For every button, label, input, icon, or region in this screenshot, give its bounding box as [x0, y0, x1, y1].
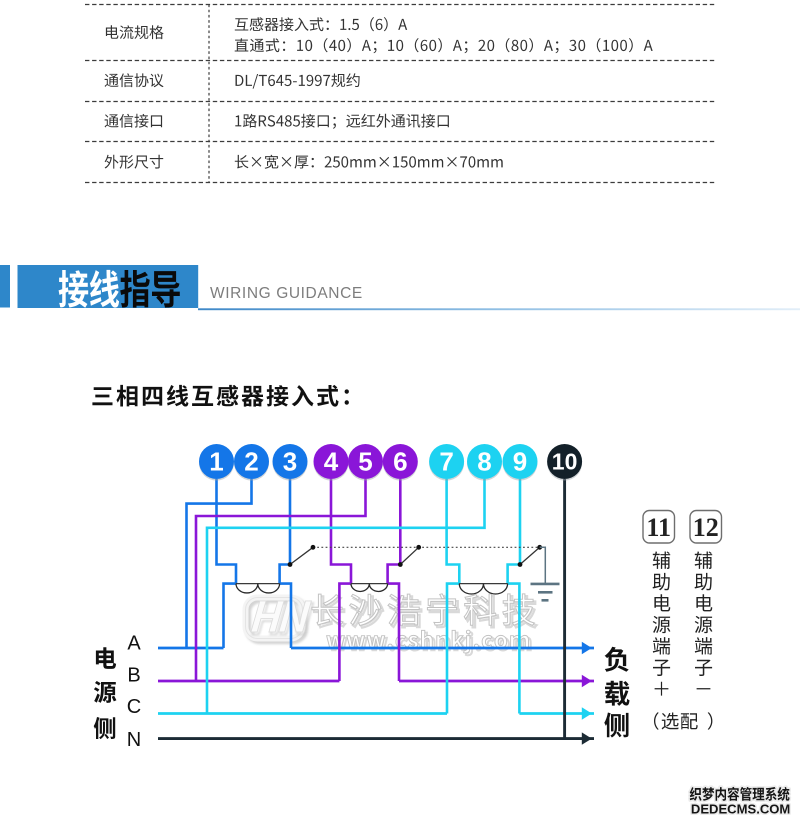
svg-text:11: 11	[646, 513, 671, 542]
svg-text:3: 3	[283, 447, 297, 477]
svg-text:DEDECMS.COM: DEDECMS.COM	[691, 801, 790, 816]
svg-text:10: 10	[552, 449, 578, 475]
svg-text:WIRING GUIDANCE: WIRING GUIDANCE	[210, 285, 363, 302]
svg-text:2: 2	[244, 447, 258, 477]
svg-text:N: N	[127, 729, 141, 751]
svg-text:1: 1	[209, 447, 223, 477]
svg-text:8: 8	[477, 447, 491, 477]
svg-text:C: C	[127, 696, 141, 718]
svg-text:4: 4	[324, 447, 339, 477]
svg-text:7: 7	[439, 447, 453, 477]
svg-text:9: 9	[513, 447, 527, 477]
svg-text:6: 6	[393, 447, 407, 477]
svg-text:B: B	[127, 664, 140, 686]
svg-text:A: A	[127, 633, 141, 655]
svg-text:5: 5	[358, 447, 372, 477]
svg-text:12: 12	[693, 513, 719, 542]
